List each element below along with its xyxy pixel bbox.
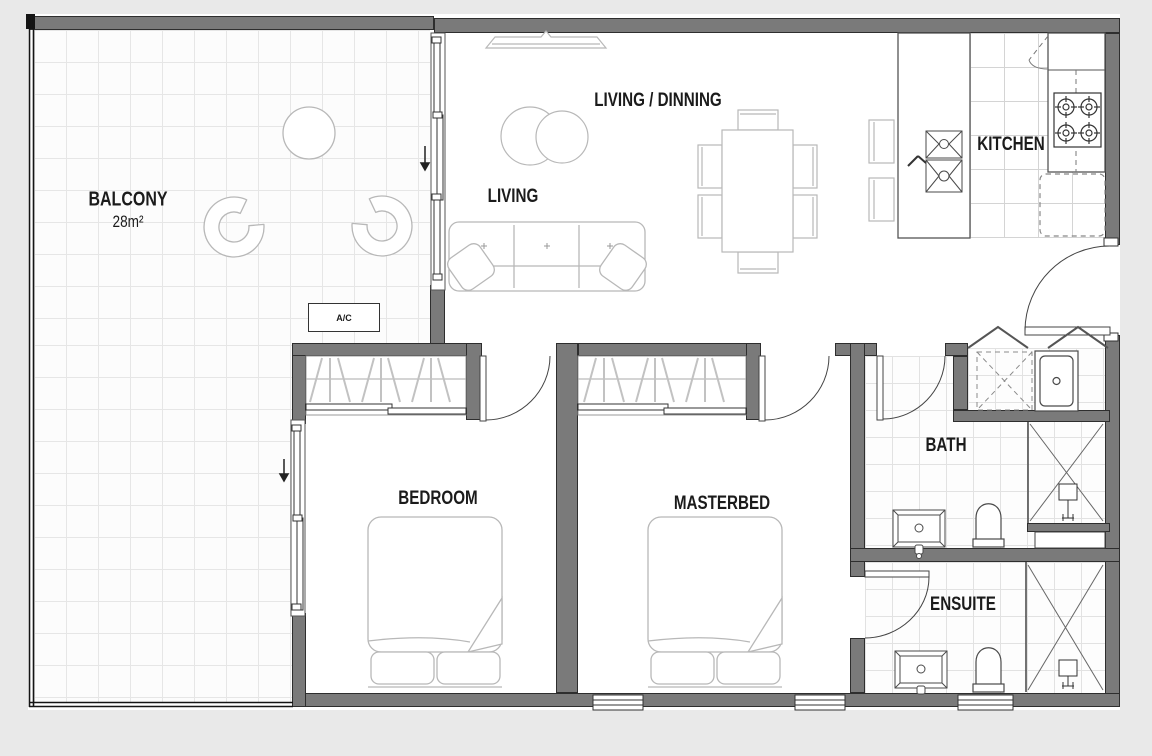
room-label-masterbed: MASTERBED [674,493,770,515]
bedroom-wardrobe [306,356,466,415]
window [795,695,845,710]
bar-stools [869,120,894,221]
ensuite-shower [1026,562,1103,692]
linen-closet [977,352,1032,410]
room-label-living-dining: LIVING / DINNING [594,90,722,112]
entry-door [1025,238,1118,341]
plan-linework [0,0,1152,756]
dining-chair [738,252,778,273]
room-label-living: LIVING [488,186,539,208]
room-label-kitchen: KITCHEN [977,134,1045,156]
kitchen-island [898,33,970,238]
bath-vanity [893,510,945,559]
tv [486,31,606,48]
laundry-tub [1035,351,1078,411]
sofa [445,222,650,293]
balcony-bedroom-sliding-door [291,420,305,616]
balcony-table [283,107,335,159]
masterbed-wardrobe [578,356,746,415]
balcony-living-sliding-door [431,33,445,290]
coffee-tables [501,107,588,165]
room-label-ensuite: ENSUITE [930,594,996,616]
room-area-balcony: 28m² [113,212,144,232]
faucet-icon [917,554,922,559]
ensuite-door [865,571,929,638]
fridge [1040,174,1105,236]
masterbed-bed [648,517,782,687]
floor-plan: BALCONY 28m² LIVING / DINNING LIVING KIT… [0,0,1152,756]
window [958,695,1013,710]
dining-table [698,110,817,273]
window [593,695,643,710]
room-label-bedroom: BEDROOM [398,488,477,510]
room-label-bath: BATH [925,435,966,457]
balcony-railing [26,14,293,707]
bedroom-bed [368,517,502,687]
ensuite-vanity [895,651,947,694]
ac-unit: A/C [308,303,380,332]
shower-mixer-icon [1059,660,1077,689]
shower-mixer-icon [1059,484,1077,521]
balcony-chair-left [204,197,264,257]
room-label-balcony: BALCONY [88,189,167,212]
slide-arrow-icon [280,459,288,481]
masterbed-door [759,356,829,421]
bath-shower [1028,422,1103,523]
faucet-icon [915,545,923,554]
dining-chair [738,110,778,130]
bath-toilet [973,504,1004,547]
slide-arrow-icon [421,146,429,170]
ensuite-toilet [973,648,1004,692]
ac-unit-label: A/C [336,313,352,323]
faucet-icon [917,686,925,694]
bedroom-door [480,356,550,421]
balcony-chair-right [352,196,412,256]
bath-door [877,356,945,420]
shower-niche [1035,532,1105,548]
stove [1054,93,1101,147]
